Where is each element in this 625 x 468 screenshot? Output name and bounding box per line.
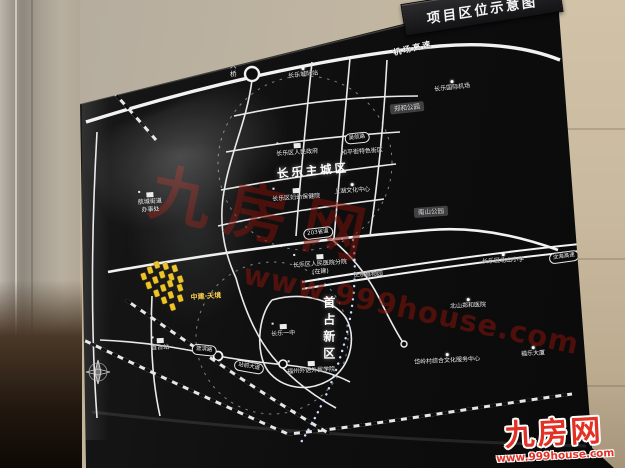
map-label-text: 和平街特色街区 bbox=[341, 147, 383, 158]
road-badge-zhanqian-avenue: 站前大道 bbox=[233, 359, 264, 375]
road-badge-wuhang-road: 吴航路 bbox=[344, 131, 370, 144]
map-label-text: 福乐大厦 bbox=[521, 349, 545, 358]
map-label-text: 长乐区人民医院分院 (在建) bbox=[293, 258, 348, 277]
glass-glare bbox=[118, 148, 268, 338]
map-label-text: 郑和公园 bbox=[390, 101, 425, 115]
site-logo: 九房网 www.999house.com bbox=[493, 405, 614, 465]
poi-beishan-primary-school: 长乐区北山小学 bbox=[482, 252, 525, 266]
poi-nanshan-park: 南山公园 bbox=[414, 206, 449, 219]
dot-marker bbox=[445, 353, 448, 356]
poi-changle-international-airport: 长乐国际机场 bbox=[433, 78, 470, 93]
road-badge-shenhai-expressway: 沈海高速 bbox=[548, 250, 579, 265]
map-label-text: 首占新区 bbox=[320, 296, 336, 364]
dot-marker bbox=[466, 298, 469, 301]
road-badge-yingbin-road: 营滨路 bbox=[191, 343, 217, 356]
map-label-text: 站前大道 bbox=[233, 359, 264, 375]
poi-changle-intercity-station: 长乐城际站 bbox=[287, 66, 318, 81]
poi-changle-botanical-garden: 长乐植物园 bbox=[353, 270, 383, 280]
poi-peoples-hospital-branch: 长乐区人民医院分院 (在建) bbox=[292, 252, 347, 277]
road-label-airport-expressway: 机场高速 bbox=[392, 39, 433, 58]
dot-marker bbox=[450, 80, 453, 83]
map-label-text: 首占站 bbox=[151, 344, 169, 353]
map-label-text: 长乐一中 bbox=[271, 329, 295, 338]
poi-heping-street-block: 和平街特色街区 bbox=[341, 147, 383, 158]
dot-marker bbox=[531, 346, 534, 349]
floor-shadow bbox=[0, 280, 82, 468]
building-icon bbox=[156, 338, 163, 343]
dot-marker bbox=[301, 67, 304, 70]
building-icon bbox=[316, 254, 323, 259]
map-label-text: 机场高速 bbox=[392, 39, 433, 58]
glass-glare bbox=[82, 100, 110, 440]
map-label-text: 吴航路 bbox=[344, 131, 370, 144]
poi-beishan-zhenghe-hospital: 北山郑和医院 bbox=[450, 297, 487, 311]
map-label-text: 南山公园 bbox=[414, 206, 449, 219]
poi-shanghu-culture-center: 上湖文化中心 bbox=[334, 182, 371, 196]
map-label-text: 福州外语外贸学院 bbox=[287, 366, 335, 376]
map-label-text: 长乐国际机场 bbox=[434, 82, 471, 94]
district-label-shouzhan-new-district: 首占新区 bbox=[320, 296, 336, 364]
poi-shouzhan-station: 首占站 bbox=[151, 338, 170, 353]
building-icon bbox=[279, 324, 286, 329]
poi-changle-no1-middle-school: 长乐一中 bbox=[271, 323, 296, 338]
map-label-text: 营滨路 bbox=[191, 343, 217, 356]
map-label-text: 岱岭村综合文化服务中心 bbox=[414, 355, 480, 366]
map-label-text: 长乐区北山小学 bbox=[482, 256, 524, 266]
road-badge-provincial-road-203: 203省道 bbox=[303, 226, 334, 240]
poi-fuzhou-foreign-studies-college: 福州外语外贸学院 bbox=[287, 360, 336, 376]
map-label-text: 长乐植物园 bbox=[353, 270, 383, 280]
map-label-text: 上湖文化中心 bbox=[334, 186, 370, 196]
poi-dailing-culture-service-center: 岱岭村综合文化服务中心 bbox=[414, 351, 481, 366]
dot-marker bbox=[350, 183, 353, 186]
poi-zhenghe-park: 郑和公园 bbox=[390, 101, 425, 115]
map-label-text: 北山郑和医院 bbox=[450, 301, 486, 311]
poi-fule-tower: 福乐大厦 bbox=[521, 345, 546, 358]
map-label-text: 长乐城际站 bbox=[288, 70, 319, 81]
photo-of-project-location-map: 九房网 www.999house.com 机场高速营前大桥长乐主城区长乐区人民政… bbox=[0, 0, 625, 468]
map-label-text: 203省道 bbox=[303, 226, 334, 240]
dot-marker bbox=[501, 253, 504, 256]
building-icon bbox=[307, 361, 314, 366]
map-label-text: 沈海高速 bbox=[548, 250, 579, 265]
